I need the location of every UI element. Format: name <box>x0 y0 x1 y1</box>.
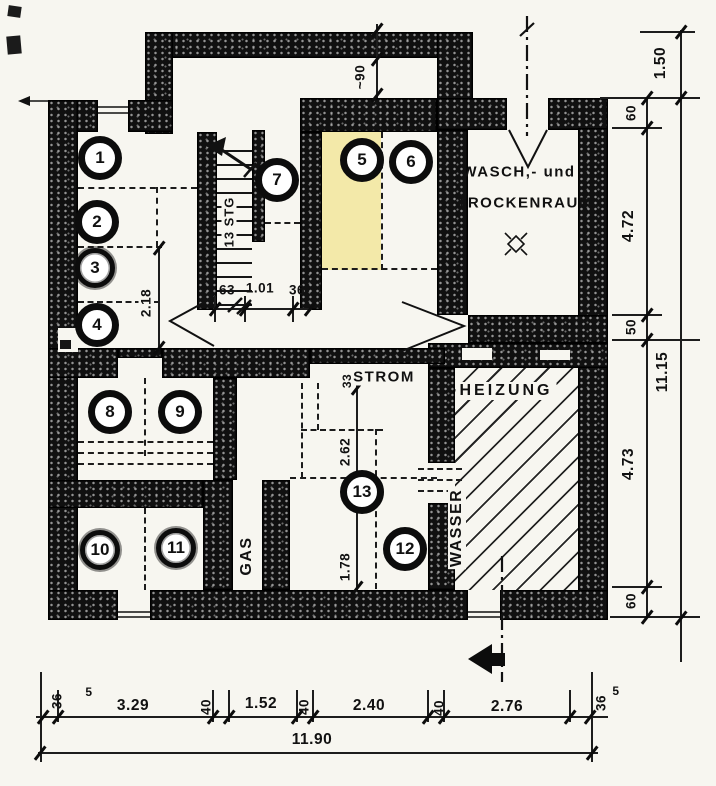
dim-ext <box>610 616 700 618</box>
dim-value: 3.29 <box>117 697 149 715</box>
dim-value: 1.50 <box>652 47 670 79</box>
dim-value: 63 <box>219 283 235 298</box>
dim-ext <box>612 339 700 341</box>
partition-dashed <box>301 429 383 431</box>
partition-dashed <box>322 268 437 270</box>
wall-middle-left-b <box>162 348 310 378</box>
dim-value: 60 <box>624 593 639 609</box>
wall-opening-notch <box>118 358 162 378</box>
dim-ext <box>600 97 700 99</box>
dim-value-sup: 5 <box>612 684 619 698</box>
section-arrow-icon <box>468 644 505 674</box>
dim-value: 4.72 <box>620 210 638 242</box>
room-number-7: 7 <box>255 158 299 202</box>
dim-value: 2.76 <box>491 698 523 716</box>
room-label-wasch-line2: TROCKENRAUM <box>457 195 593 212</box>
floor-plan-scan: WASCH,- und TROCKENRAUM HEIZUNG STROM GA… <box>0 0 716 786</box>
wall-bottom-b <box>150 590 468 620</box>
wall-middle-left-a <box>48 348 118 378</box>
wall-bottom-a <box>48 590 118 620</box>
dim-value-sup: 5 <box>85 685 92 699</box>
wall-heizung-left-a <box>428 368 455 463</box>
dim-ext <box>612 586 662 588</box>
dim-value: 50 <box>624 319 639 335</box>
room-number-6: 6 <box>389 140 433 184</box>
dim-ext <box>612 127 662 129</box>
room-label-heizung: HEIZUNG <box>456 382 557 400</box>
dim-line-bottom-total <box>38 752 598 754</box>
wall-heizung-top <box>428 343 608 368</box>
wall-top-right-b <box>548 98 608 130</box>
dim-value: 40 <box>297 699 312 715</box>
dim-value: 40 <box>432 700 447 716</box>
dim-ext <box>640 31 695 33</box>
wall-gas-right <box>262 480 290 590</box>
dim-value: 36 <box>289 283 305 298</box>
room-number-11: 11 <box>156 528 196 568</box>
door-swing-entrance <box>509 130 547 167</box>
wall-opening-heizung-slot-1 <box>462 348 492 360</box>
dim-value: 11.15 <box>654 352 672 392</box>
room-number-3: 3 <box>75 248 115 288</box>
dim-value: 1.78 <box>338 553 353 581</box>
stair-count-label: 13 STG <box>222 197 237 248</box>
room-number-5: 5 <box>340 138 384 182</box>
wall-top-right-a <box>437 98 507 130</box>
room-number-2: 2 <box>75 200 119 244</box>
room-number-4: 4 <box>75 303 119 347</box>
partition-dashed <box>78 441 213 443</box>
dim-value: 36 <box>594 695 609 711</box>
room-number-12: 12 <box>383 527 427 571</box>
dim-line-hall <box>215 308 312 310</box>
partition-dashed <box>78 463 213 465</box>
wall-bottom-c <box>500 590 608 620</box>
room-number-10: 10 <box>80 530 120 570</box>
wall-opening-heizung-slot-2 <box>540 350 570 360</box>
dim-value: 40 <box>199 699 214 715</box>
scan-artifact <box>7 5 21 18</box>
wall-cells-right <box>437 130 468 315</box>
room-number-9: 9 <box>158 390 202 434</box>
dim-value: 36 <box>50 693 65 709</box>
wall-room1-right <box>197 132 217 310</box>
wall-gas-left <box>203 480 233 590</box>
room-number-1: 1 <box>78 136 122 180</box>
dim-line-right-inner <box>646 98 648 618</box>
dim-value: 33 <box>340 374 354 388</box>
room-label-gas: GAS <box>238 536 256 575</box>
room-label-wasch-line1: WASCH,- und <box>462 164 575 181</box>
partition-dashed <box>144 508 146 590</box>
dim-value-total: 11.90 <box>292 731 332 749</box>
wall-wing-top <box>145 32 473 58</box>
wall-strom-niche <box>310 348 445 364</box>
dim-value: 2.18 <box>139 289 154 317</box>
dim-line-right-outer <box>680 30 682 662</box>
dim-value: 1.01 <box>246 281 274 296</box>
room-label-strom: STROM <box>351 369 417 386</box>
dim-ext <box>612 314 662 316</box>
pipe-dashed <box>418 468 462 470</box>
partition-dashed <box>144 378 146 456</box>
dim-value: 60 <box>624 105 639 121</box>
dim-value: 1.52 <box>245 695 277 713</box>
scan-artifact <box>6 35 22 54</box>
dim-value: 4.73 <box>620 448 638 480</box>
room-number-13: 13 <box>340 470 384 514</box>
leader-arrow-icon <box>18 96 30 106</box>
heizung-hatch <box>455 368 578 590</box>
dim-value: 2.40 <box>353 697 385 715</box>
partition-dashed <box>317 383 319 430</box>
dim-line-left-room <box>158 247 160 350</box>
dim-value: ~90 <box>353 65 368 89</box>
wall-top-left-b <box>128 100 173 132</box>
dim-line-bottom-chain <box>36 716 608 718</box>
wall-under-room89 <box>48 480 203 508</box>
partition-dashed <box>156 187 158 247</box>
room-label-wasser: WASSER <box>448 487 466 569</box>
wall-room89-right <box>213 378 237 480</box>
wall-top-middle <box>300 98 437 132</box>
left-wall-niche <box>58 328 78 352</box>
dim-value: 2.62 <box>338 438 353 466</box>
room-number-8: 8 <box>88 390 132 434</box>
partition-dashed <box>78 452 213 454</box>
partition-dashed <box>78 187 197 189</box>
pipe-dashed <box>418 479 462 481</box>
partition-dashed <box>265 222 300 224</box>
wall-wasch-bottom <box>468 315 608 343</box>
drain-symbol <box>508 236 524 252</box>
